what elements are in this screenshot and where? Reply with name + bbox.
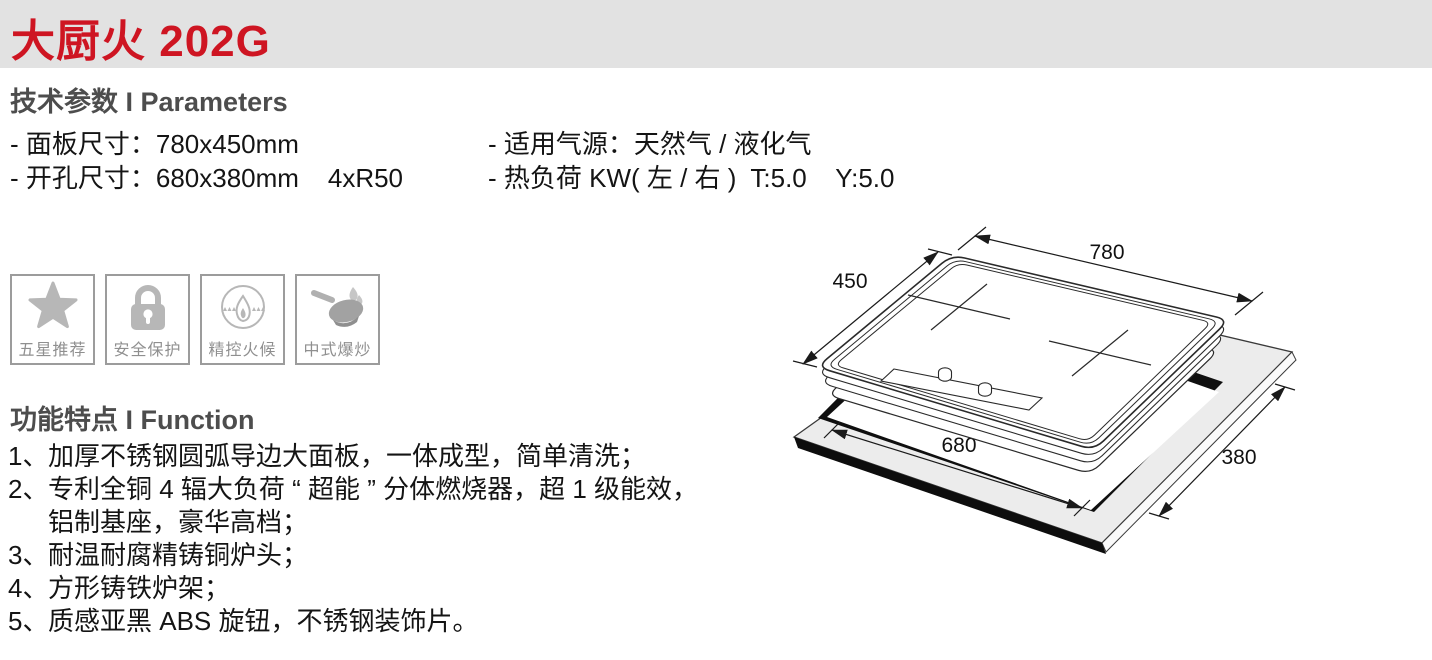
panel-depth-dimension: 450	[832, 270, 867, 293]
parameters-heading: 技术参数 I Parameters	[10, 80, 288, 119]
function-heading: 功能特点 I Function	[10, 398, 254, 437]
list-item: 4、 方形铸铁炉架；	[8, 572, 748, 605]
badge-flame-control: 精控火候	[200, 274, 285, 365]
badge-safety: 安全保护	[105, 274, 190, 365]
flame-control-icon	[214, 280, 272, 343]
badge-label: 五星推荐	[12, 336, 93, 360]
cutout-depth-dimension: 380	[1221, 446, 1256, 469]
function-list: 1、 加厚不锈钢圆弧导边大面板，一体成型，简单清洗； 2、 专利全铜 4 辐大负…	[8, 440, 748, 638]
param-gas-source: - 适用气源：天然气 / 液化气	[488, 124, 812, 161]
feature-badges: 五星推荐 安全保护	[10, 274, 380, 365]
list-item: 1、 加厚不锈钢圆弧导边大面板，一体成型，简单清洗；	[8, 440, 748, 473]
product-title: 大厨火 202G	[11, 5, 271, 69]
burner-knob	[979, 383, 992, 396]
badge-label: 安全保护	[107, 336, 188, 360]
wok-icon	[309, 280, 367, 343]
title-band: 大厨火 202G	[0, 0, 1432, 68]
lock-icon	[119, 280, 177, 343]
burner-knob	[939, 368, 952, 381]
badge-label: 精控火候	[202, 336, 283, 360]
list-item: 2、 专利全铜 4 辐大负荷 “ 超能 ” 分体燃烧器，超 1 级能效， 铝制基…	[8, 473, 748, 539]
list-item: 5、 质感亚黑 ABS 旋钮，不锈钢装饰片。	[8, 605, 748, 638]
param-heat-load: - 热负荷 KW( 左 / 右 ) T:5.0 Y:5.0	[488, 158, 894, 195]
panel-width-dimension: 780	[1089, 241, 1124, 264]
spec-sheet-page: 大厨火 202G 技术参数 I Parameters - 面板尺寸：780x45…	[0, 0, 1432, 660]
param-panel-size: - 面板尺寸：780x450mm	[10, 124, 299, 161]
badge-label: 中式爆炒	[297, 336, 378, 360]
badge-five-star: 五星推荐	[10, 274, 95, 365]
list-item: 3、 耐温耐腐精铸铜炉头；	[8, 539, 748, 572]
installation-diagram: 680 380	[782, 220, 1432, 660]
star-icon	[24, 280, 82, 343]
badge-stir-fry: 中式爆炒	[295, 274, 380, 365]
param-cutout-size: - 开孔尺寸：680x380mm 4xR50	[10, 158, 403, 195]
